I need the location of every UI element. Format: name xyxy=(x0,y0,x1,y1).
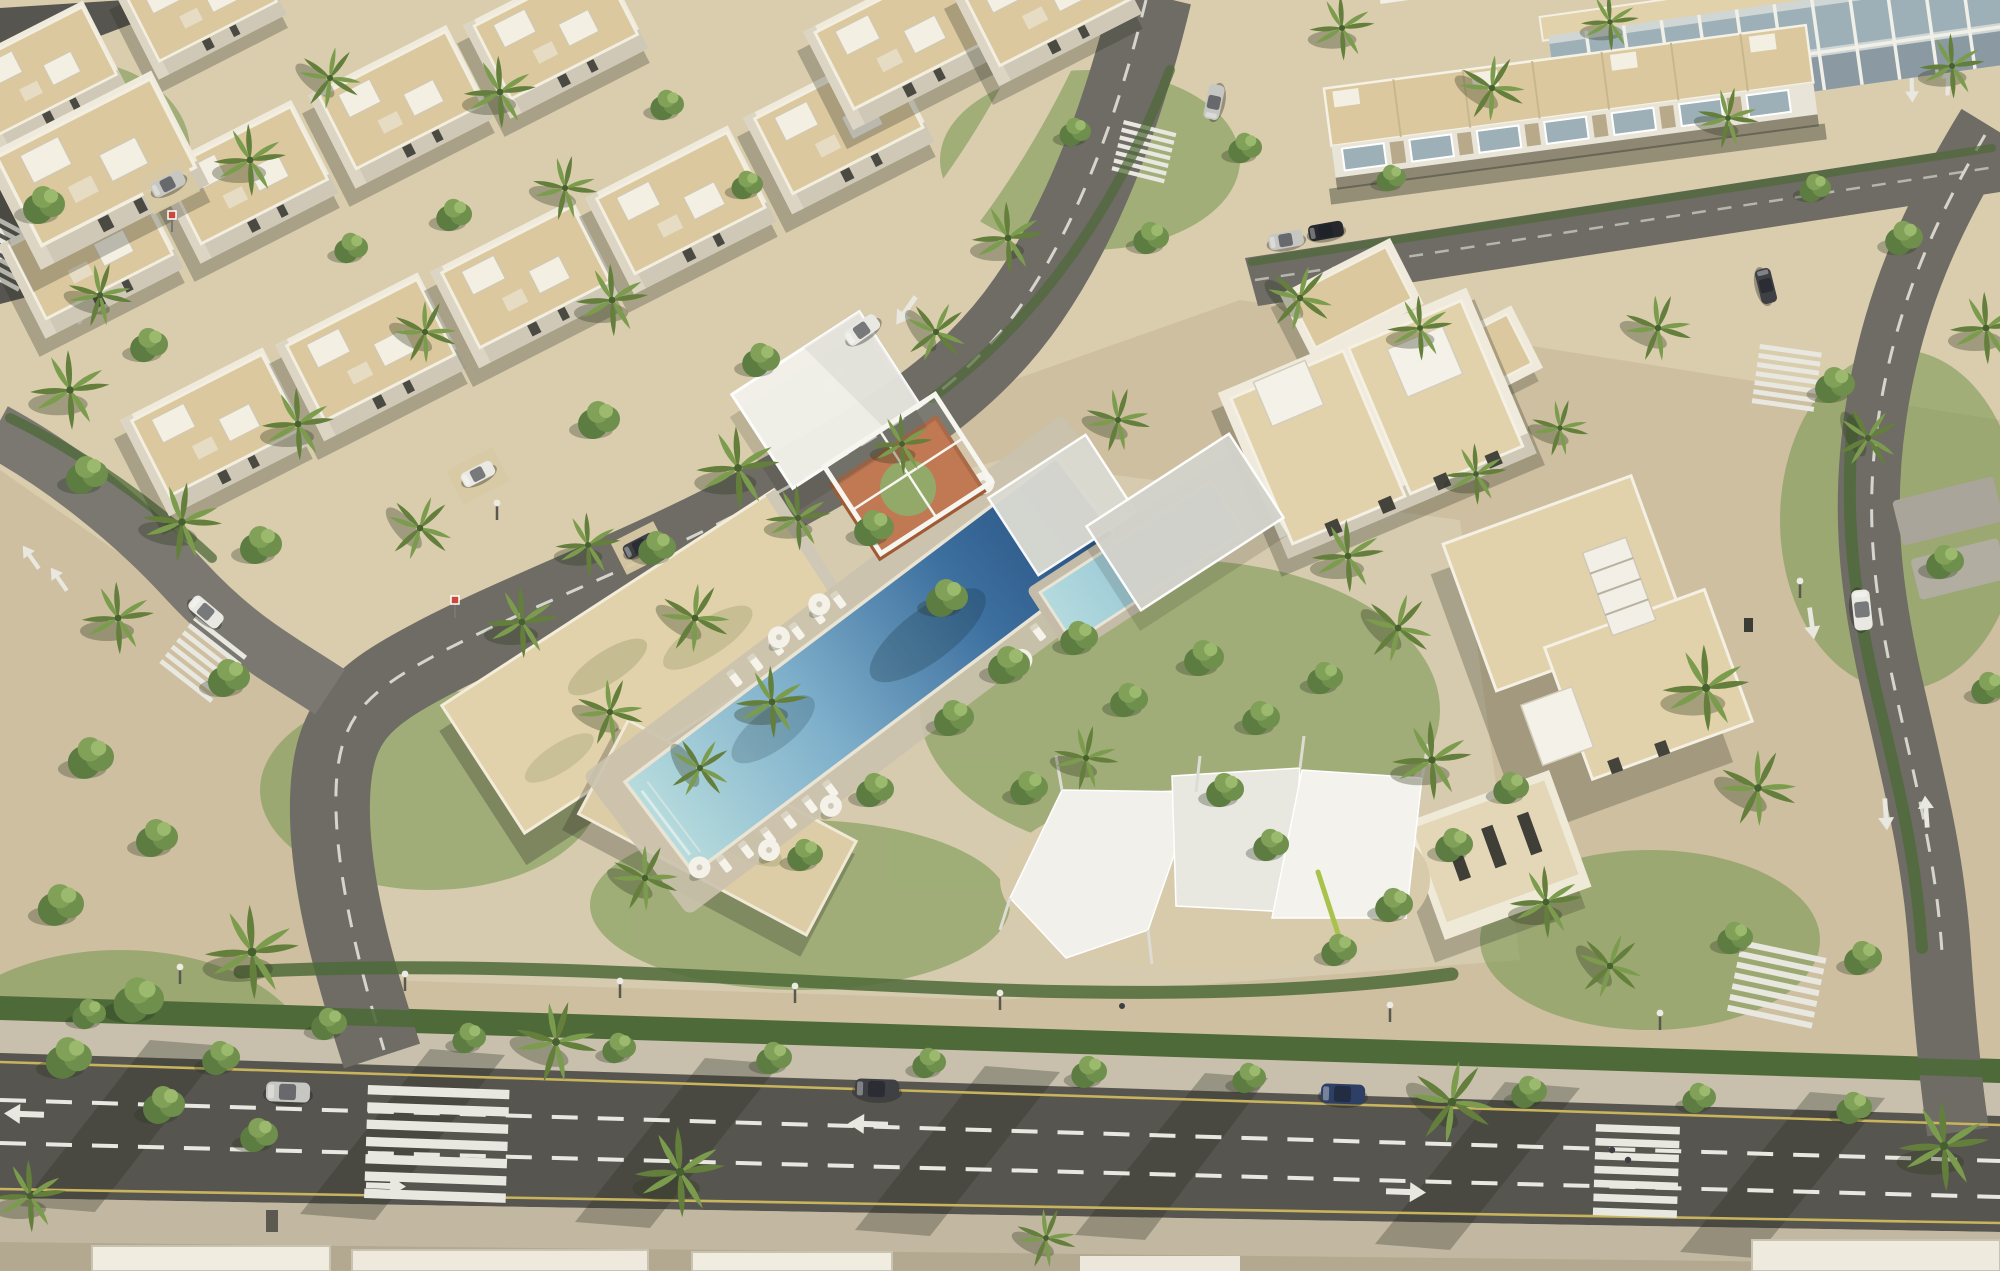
trash-bin xyxy=(1744,618,1753,632)
rooftop xyxy=(692,1252,892,1271)
rooftop xyxy=(1080,1256,1240,1271)
rooftop xyxy=(352,1250,648,1271)
render-canvas xyxy=(0,0,2000,1271)
rooftop xyxy=(92,1246,330,1271)
utility-box xyxy=(266,1210,278,1232)
rooftop xyxy=(1752,1240,2000,1271)
aerial-community-rendering xyxy=(0,0,2000,1271)
